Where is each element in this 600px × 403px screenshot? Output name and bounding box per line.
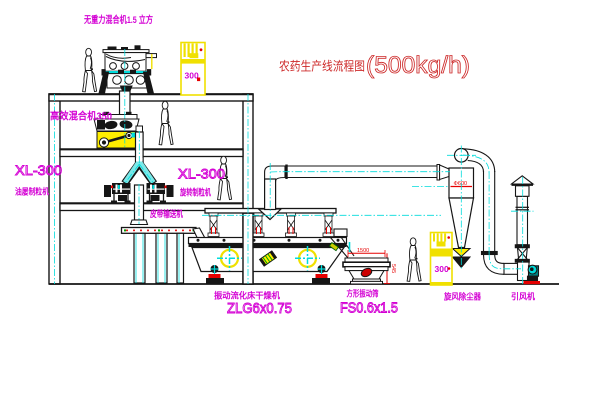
svg-text:545: 545 (390, 264, 396, 273)
svg-text:振动流化床干燥机: 振动流化床干燥机 (214, 291, 280, 301)
svg-text:Φ600: Φ600 (454, 181, 468, 187)
svg-text:FS0.6x1.5: FS0.6x1.5 (340, 301, 398, 317)
svg-text:1500: 1500 (357, 248, 369, 254)
svg-text:XL-300: XL-300 (15, 162, 62, 178)
svg-text:ZLG6x0.75: ZLG6x0.75 (227, 301, 292, 317)
svg-text:引风机: 引风机 (511, 292, 535, 302)
svg-text:300: 300 (435, 264, 449, 274)
svg-text:300: 300 (185, 71, 199, 81)
svg-text:旋转制粒机: 旋转制粒机 (179, 187, 211, 198)
svg-text:(500kg/h): (500kg/h) (366, 52, 470, 79)
svg-text:无重力混合机1.5 立方: 无重力混合机1.5 立方 (83, 14, 153, 26)
svg-text:方形振动筛: 方形振动筛 (347, 289, 379, 299)
svg-text:高效混合机350: 高效混合机350 (50, 110, 112, 123)
svg-text:油屡制粒机: 油屡制粒机 (15, 187, 49, 197)
svg-text:XL-300: XL-300 (178, 166, 225, 182)
svg-text:旋风除尘器: 旋风除尘器 (443, 292, 481, 302)
svg-text:农药生产线流程图: 农药生产线流程图 (279, 59, 365, 74)
svg-text:皮带输送机: 皮带输送机 (149, 208, 183, 219)
